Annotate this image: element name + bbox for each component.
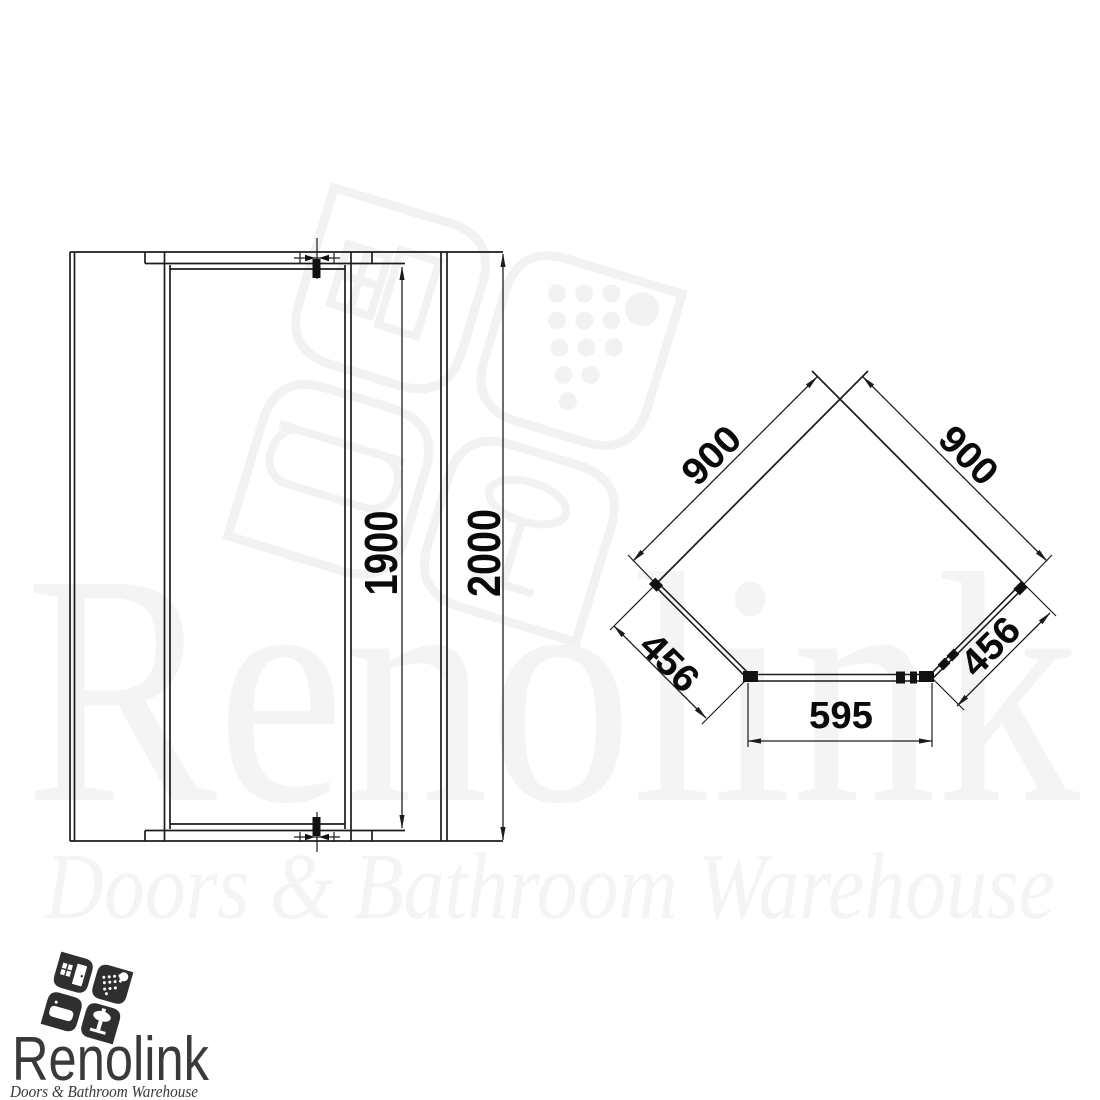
- watermark-bathtub-icon: [264, 424, 404, 515]
- dim-door-height-label: 1900: [355, 511, 407, 596]
- watermark-tagline-text: Doors & Bathroom Warehouse: [43, 835, 1055, 939]
- top-pivot-hinge: [294, 238, 340, 279]
- watermark-layer: Renolink Doors & Bathroom Warehouse: [25, 188, 1080, 939]
- dim-left-wall-label: 900: [674, 418, 750, 494]
- dim-right-wall-label: 900: [930, 418, 1006, 494]
- watermark-brand-text: Renolink: [25, 507, 1080, 872]
- door-handle-mark: [896, 672, 905, 684]
- renolink-logo: Renolink Doors & Bathroom Warehouse: [9, 952, 210, 1100]
- watermark-shower-icon: [517, 265, 664, 428]
- logo-tagline-text: Doors & Bathroom Warehouse: [9, 1082, 198, 1100]
- technical-drawing-canvas: Renolink Doors & Bathroom Warehouse: [0, 0, 1100, 1100]
- dim-front-width-label: 595: [809, 695, 873, 737]
- door-handle-mark: [910, 672, 917, 684]
- product-dimension-diagram: Renolink Doors & Bathroom Warehouse: [0, 0, 1100, 1100]
- dim-overall-height-label: 2000: [458, 509, 510, 597]
